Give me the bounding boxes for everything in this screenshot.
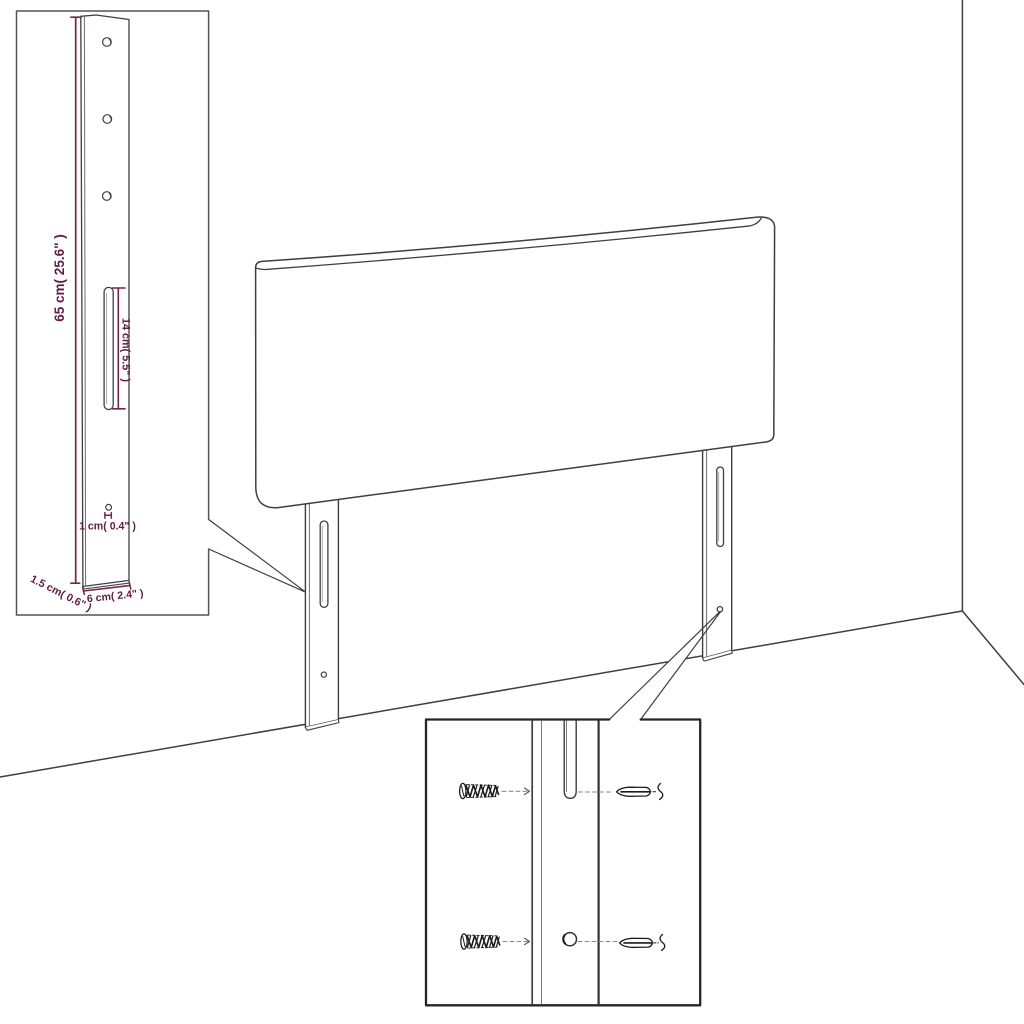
svg-text:14 cm( 5.5" ): 14 cm( 5.5" ) bbox=[120, 318, 132, 382]
svg-text:65 cm( 25.6" ): 65 cm( 25.6" ) bbox=[52, 234, 67, 321]
svg-text:1 cm( 0.4" ): 1 cm( 0.4" ) bbox=[79, 520, 136, 532]
